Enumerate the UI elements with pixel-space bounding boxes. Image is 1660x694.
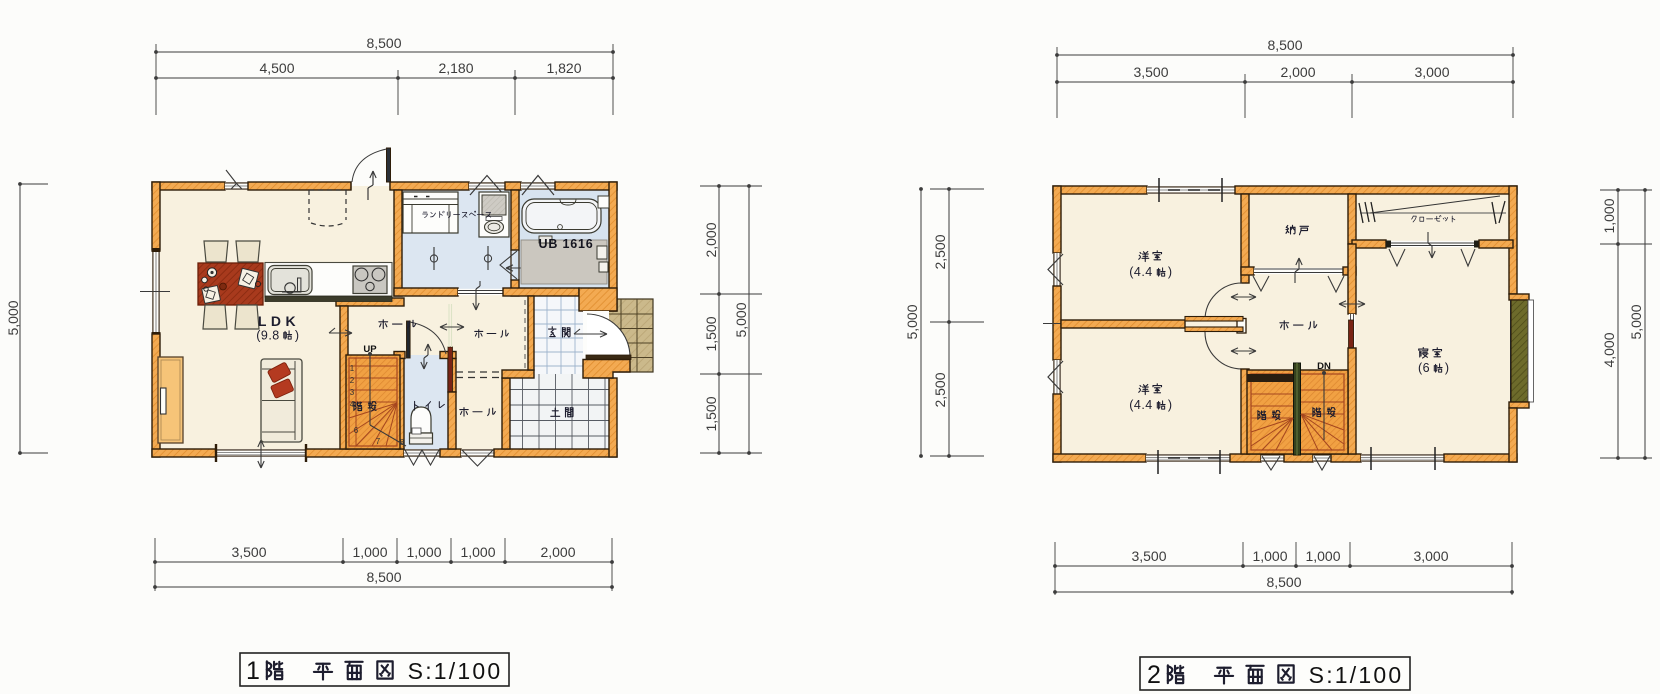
svg-text:8,500: 8,500 [1267, 37, 1302, 53]
svg-text:): ) [1168, 398, 1172, 412]
svg-text:(9.8: (9.8 [256, 329, 280, 343]
svg-text:1,000: 1,000 [1601, 198, 1617, 233]
svg-text:DN: DN [1317, 361, 1331, 372]
svg-text:5,000: 5,000 [5, 300, 21, 335]
svg-text:2: 2 [350, 376, 355, 385]
svg-text:1,000: 1,000 [460, 544, 495, 560]
svg-text:S:1/100: S:1/100 [1309, 662, 1404, 688]
svg-text:S:1/100: S:1/100 [408, 658, 503, 684]
svg-text:1,820: 1,820 [546, 60, 581, 76]
svg-text:4,500: 4,500 [259, 60, 294, 76]
svg-text:1: 1 [246, 657, 260, 685]
svg-text:2,000: 2,000 [1280, 64, 1315, 80]
svg-text:LDK: LDK [258, 313, 300, 329]
svg-text:3,500: 3,500 [231, 544, 266, 560]
svg-text:2,000: 2,000 [703, 222, 719, 257]
svg-text:1: 1 [350, 364, 355, 373]
svg-text:2,500: 2,500 [932, 372, 948, 407]
svg-text:3,000: 3,000 [1414, 64, 1449, 80]
svg-text:5,000: 5,000 [733, 302, 749, 337]
svg-text:1,000: 1,000 [352, 544, 387, 560]
svg-text:1,000: 1,000 [1252, 548, 1287, 564]
svg-text:3,500: 3,500 [1133, 64, 1168, 80]
svg-text:1,000: 1,000 [1305, 548, 1340, 564]
svg-text:2: 2 [1147, 661, 1161, 689]
svg-text:UB 1616: UB 1616 [539, 237, 594, 251]
svg-text:3,000: 3,000 [1413, 548, 1448, 564]
svg-text:4,000: 4,000 [1601, 332, 1617, 367]
svg-text:2,500: 2,500 [932, 234, 948, 269]
svg-text:1,500: 1,500 [703, 316, 719, 351]
svg-text:(4.4: (4.4 [1129, 265, 1153, 279]
svg-text:2,180: 2,180 [438, 60, 473, 76]
svg-text:): ) [1445, 361, 1449, 375]
svg-text:5,000: 5,000 [1628, 304, 1644, 339]
svg-text:8: 8 [400, 438, 405, 447]
svg-text:8,500: 8,500 [1266, 574, 1301, 590]
svg-text:): ) [1168, 265, 1172, 279]
svg-text:5,000: 5,000 [904, 304, 920, 339]
svg-text:7: 7 [376, 437, 381, 446]
svg-text:1,500: 1,500 [703, 396, 719, 431]
svg-text:3: 3 [350, 388, 355, 397]
svg-text:(6: (6 [1418, 361, 1430, 375]
svg-text:6: 6 [354, 426, 359, 435]
svg-text:2,000: 2,000 [540, 544, 575, 560]
svg-text:UP: UP [363, 344, 377, 355]
svg-text:8,500: 8,500 [366, 35, 401, 51]
svg-text:(4.4: (4.4 [1129, 398, 1153, 412]
svg-text:1,000: 1,000 [406, 544, 441, 560]
svg-text:3,500: 3,500 [1131, 548, 1166, 564]
svg-text:): ) [295, 329, 299, 343]
svg-text:8,500: 8,500 [366, 569, 401, 585]
